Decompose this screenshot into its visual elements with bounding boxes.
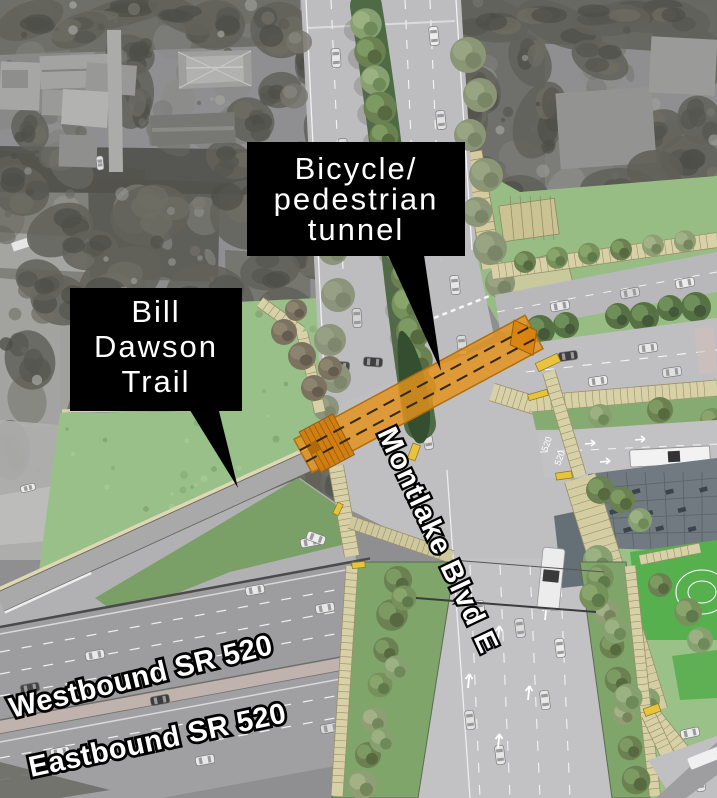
svg-text:tunnel: tunnel — [308, 212, 404, 247]
svg-text:Bill: Bill — [131, 294, 180, 329]
svg-text:Trail: Trail — [121, 364, 190, 399]
svg-text:Dawson: Dawson — [94, 329, 218, 364]
